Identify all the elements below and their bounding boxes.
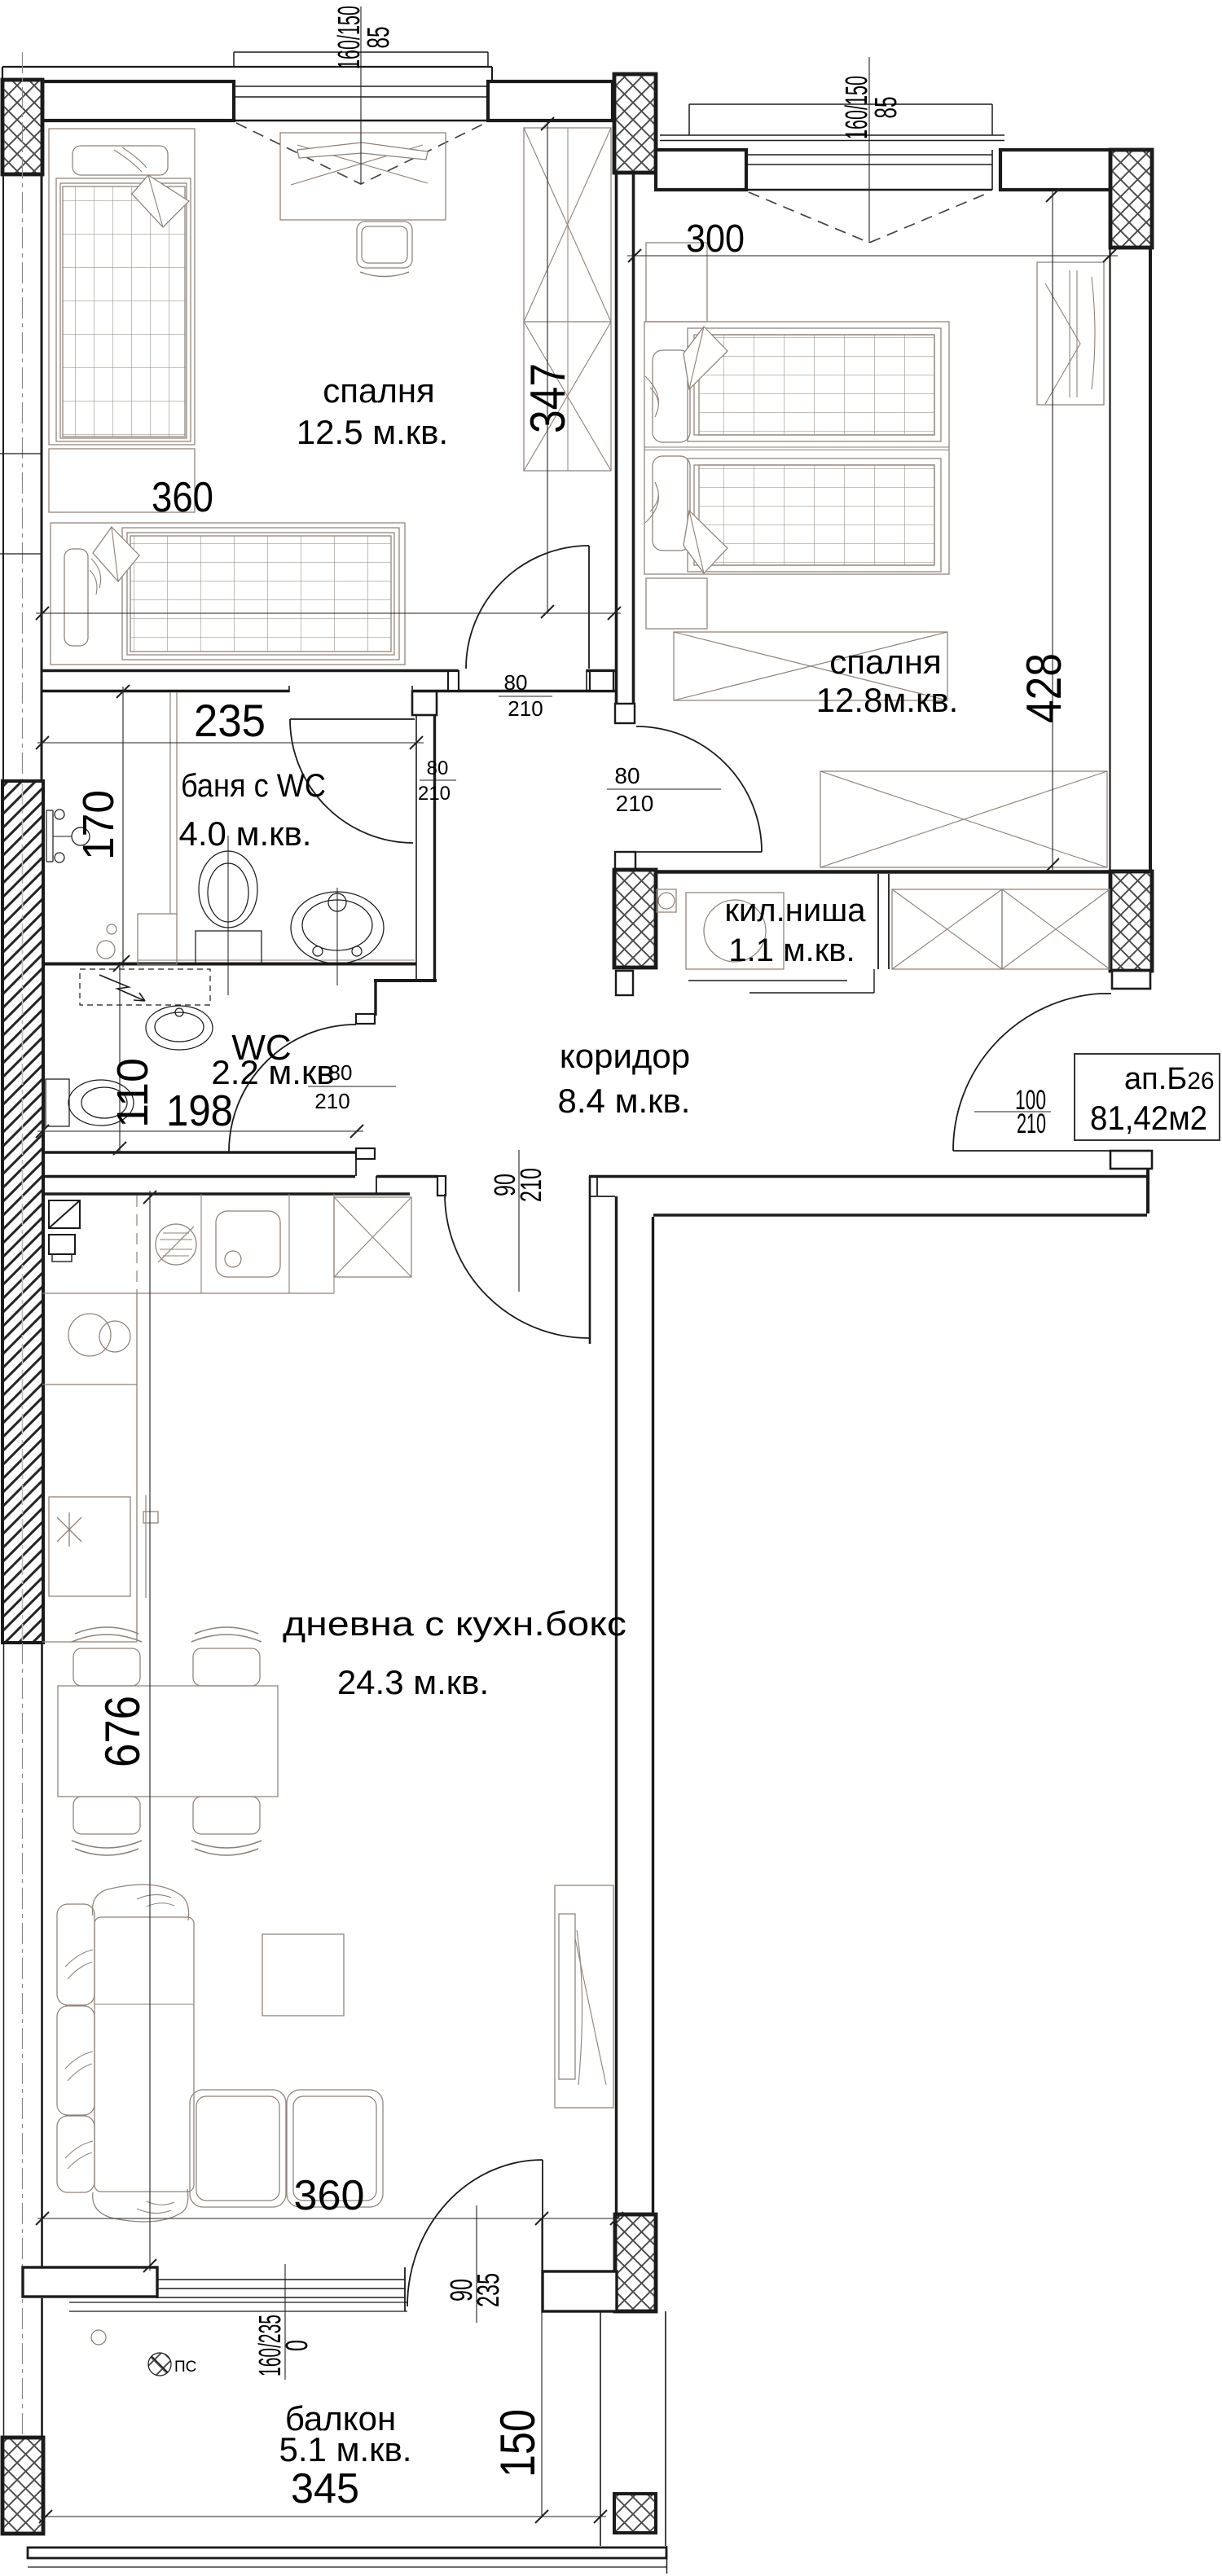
svg-text:360: 360 bbox=[294, 2172, 365, 2219]
svg-text:8.4 м.кв.: 8.4 м.кв. bbox=[558, 1082, 691, 1120]
svg-text:80: 80 bbox=[504, 670, 528, 695]
svg-text:0: 0 bbox=[280, 2340, 314, 2351]
svg-text:ап.Б26: ап.Б26 bbox=[1124, 1062, 1215, 1096]
svg-text:дневна с кухн.бокс: дневна с кухн.бокс bbox=[283, 1604, 626, 1643]
svg-text:676: 676 bbox=[95, 1696, 150, 1767]
svg-text:12.5 м.кв.: 12.5 м.кв. bbox=[297, 413, 448, 451]
svg-text:спалня: спалня bbox=[829, 643, 942, 681]
svg-text:300: 300 bbox=[686, 217, 745, 261]
svg-text:спалня: спалня bbox=[323, 371, 435, 410]
svg-text:428: 428 bbox=[1017, 653, 1071, 723]
svg-text:210: 210 bbox=[418, 783, 451, 805]
svg-text:24.3 м.кв.: 24.3 м.кв. bbox=[337, 1663, 489, 1701]
svg-text:210: 210 bbox=[1017, 1108, 1046, 1139]
svg-text:210: 210 bbox=[514, 1168, 547, 1202]
svg-text:4.0 м.кв.: 4.0 м.кв. bbox=[179, 814, 312, 853]
svg-text:2.2 м.кв: 2.2 м.кв bbox=[211, 1053, 334, 1091]
svg-text:81,42м2: 81,42м2 bbox=[1090, 1099, 1207, 1137]
svg-text:210: 210 bbox=[616, 791, 654, 816]
svg-text:150: 150 bbox=[490, 2409, 545, 2477]
svg-text:80: 80 bbox=[427, 757, 449, 779]
svg-text:коридор: коридор bbox=[560, 1037, 690, 1075]
svg-text:235: 235 bbox=[472, 2273, 506, 2307]
svg-text:12.8м.кв.: 12.8м.кв. bbox=[816, 681, 959, 719]
svg-text:1.1 м.кв.: 1.1 м.кв. bbox=[728, 933, 855, 968]
svg-text:345: 345 bbox=[291, 2465, 359, 2512]
svg-text:85: 85 bbox=[362, 27, 396, 49]
svg-text:85: 85 bbox=[869, 97, 903, 119]
svg-text:110: 110 bbox=[108, 1058, 157, 1128]
svg-text:210: 210 bbox=[508, 696, 543, 721]
svg-text:80: 80 bbox=[614, 763, 640, 788]
svg-text:170: 170 bbox=[74, 790, 123, 860]
svg-text:210: 210 bbox=[314, 1089, 349, 1113]
svg-text:5.1 м.кв.: 5.1 м.кв. bbox=[279, 2430, 412, 2468]
svg-text:80: 80 bbox=[329, 1060, 353, 1085]
svg-text:баня с WC: баня с WC bbox=[181, 768, 326, 804]
svg-text:198: 198 bbox=[166, 1086, 233, 1135]
svg-text:360: 360 bbox=[152, 474, 213, 521]
svg-text:347: 347 bbox=[521, 363, 575, 433]
svg-text:кил.ниша: кил.ниша bbox=[724, 893, 866, 928]
svg-text:235: 235 bbox=[194, 695, 266, 746]
svg-text:ПС: ПС bbox=[174, 2359, 196, 2376]
